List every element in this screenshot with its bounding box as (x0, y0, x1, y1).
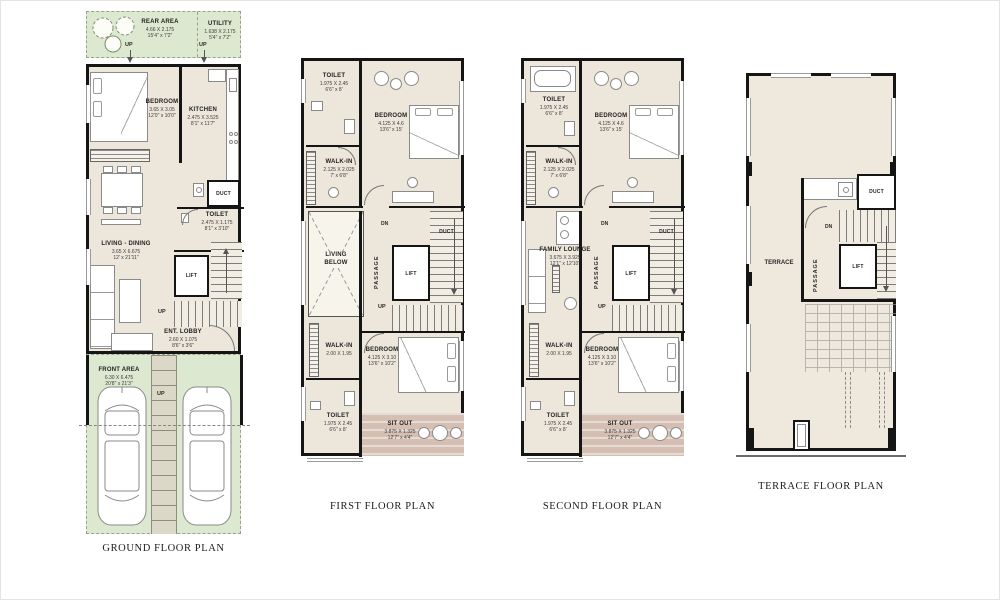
plan-title-second: SECOND FLOOR PLAN (521, 501, 684, 512)
room-dim-ft: 12'1" x 12'10" (534, 261, 596, 268)
fridge (208, 69, 226, 82)
bedroom-door-arc (584, 185, 604, 205)
lift-box: LIFT (612, 245, 650, 301)
terrace-door-arc (805, 206, 827, 228)
toilet-wall (306, 378, 362, 380)
room-label-toilet-bottom: TOILET 1.975 X 2.45 6'6" x 8' (536, 413, 580, 434)
toilet-wall (526, 378, 582, 380)
room-dim-ft: 13'6" x 10'2" (356, 361, 408, 368)
left-col-wall (579, 61, 582, 207)
mid-wall (389, 206, 465, 208)
room-name: TOILET (192, 212, 242, 220)
dresser (612, 191, 654, 203)
room-label-lift: LIFT (394, 271, 428, 278)
room-dim-ft: 8'6" x 3'6" (153, 343, 213, 350)
stair-flight-top (839, 210, 896, 242)
lounge-chair (624, 71, 639, 86)
stair-arrow (886, 226, 887, 288)
sink-drain (843, 187, 849, 193)
left-col-wall (359, 61, 362, 207)
room-dim-m: 2.00 X 1.95 (539, 351, 579, 358)
room-name: LIFT (841, 264, 875, 271)
wall-pier (746, 272, 752, 286)
room-dim-ft: 7' x 6'8" (317, 173, 361, 180)
room-label-front-area: FRONT AREA 6.30 X 6.475 20'8" x 21'3" (93, 367, 145, 388)
room-dim-ft: 6'6" x 8' (536, 427, 580, 434)
sink (311, 101, 323, 111)
room-name: BEDROOM (364, 113, 418, 121)
sink (310, 401, 321, 410)
room-name: FRONT AREA (93, 367, 145, 375)
plot-dash-line (79, 425, 250, 426)
room-label-living-below: LIVING BELOW (319, 252, 353, 268)
stool (627, 177, 638, 188)
window (86, 179, 91, 215)
stair-flight-lower (612, 305, 683, 331)
stool (328, 187, 339, 198)
room-label-ent-lobby: ENT. LOBBY 2.60 X 1.075 8'6" x 3'6" (153, 329, 213, 350)
window (459, 341, 464, 391)
sink (229, 78, 237, 92)
mid-wall-2 (582, 331, 685, 333)
room-label-bedroom-bottom: BEDROOM 4.125 X 3.10 13'6" x 10'2" (576, 347, 628, 368)
room-name: ENT. LOBBY (153, 329, 213, 337)
stove-burner (234, 140, 238, 144)
round-table (652, 425, 668, 441)
window (679, 341, 684, 391)
mid-wall (609, 206, 685, 208)
chair (560, 216, 569, 225)
second-floor-plan: TOILET 1.975 X 2.45 6'6" x 8' BEDROOM 4.… (521, 58, 684, 528)
window (301, 387, 306, 421)
round-table (432, 425, 448, 441)
up-label: UP (199, 42, 207, 48)
room-dim-ft: 6'6" x 8' (310, 87, 358, 94)
toilet-wall (177, 207, 244, 209)
ground-line (736, 455, 906, 457)
pillow (437, 108, 453, 116)
room-label-family-lounge: FAMILY LOUNGE 3.675 X 3.925 12'1" x 12'1… (534, 247, 596, 268)
pillow (93, 101, 102, 117)
room-label-duct: DUCT (209, 191, 238, 198)
pillow (447, 366, 456, 382)
window (746, 98, 751, 156)
room-dim-ft: 5'4" x 7'2" (199, 35, 241, 42)
dining-chair (117, 207, 127, 214)
living-below-void: LIVING BELOW (308, 211, 364, 317)
mid-wall-2 (362, 331, 465, 333)
dining-chair (103, 207, 113, 214)
pillow (667, 343, 676, 359)
dn-label: DN (601, 221, 608, 227)
wc (344, 119, 355, 134)
dn-label: DN (381, 221, 388, 227)
up-label: UP (158, 309, 166, 315)
chair (560, 230, 569, 239)
lift-box: LIFT (174, 255, 209, 297)
room-label-toilet: TOILET 2.475 X 1.175 8'1" x 3'10" (192, 212, 242, 233)
room-label-bedroom-top: BEDROOM 4.125 X 4.6 13'6" x 15' (584, 113, 638, 134)
room-dim-ft: 8'1" x 11'7" (177, 121, 229, 128)
stair-arrowhead (223, 248, 229, 254)
stair-flight-lower (174, 301, 242, 327)
wardrobe (306, 151, 316, 205)
room-dim-ft: 15'4" x 7'2" (127, 33, 193, 40)
room-label-walkin-top: WALK-IN 2.125 X 2.025 7' x 6'8" (537, 159, 581, 180)
stair-flight-lower (392, 305, 463, 331)
room-name: LIVING BELOW (319, 252, 353, 268)
plan-title-terrace: TERRACE FLOOR PLAN (746, 481, 896, 492)
room-name: BEDROOM (134, 99, 190, 107)
room-label-sit-out: SIT OUT 3.875 X 1.325 12'7" x 4'4" (370, 421, 430, 442)
wall-pier (746, 162, 752, 176)
room-label-toilet-top: TOILET 1.975 X 2.45 6'6" x 8' (530, 97, 578, 118)
chair (450, 427, 462, 439)
room-name: WALK-IN (319, 343, 359, 351)
stair-headroom-inner (797, 424, 806, 447)
wardrobe (90, 149, 150, 162)
mid-wall (526, 206, 583, 208)
room-name: LIFT (176, 273, 207, 280)
passage-label: PASSAGE (813, 236, 819, 292)
sit-out-zone: SIT OUT 3.875 X 1.325 12'7" x 4'4" (582, 413, 684, 456)
rear-area-zone: REAR AREA 4.66 X 2.175 15'4" x 7'2" UTIL… (86, 11, 241, 58)
window (301, 221, 306, 305)
dining-chair (103, 166, 113, 173)
room-dim-ft: 13'6" x 15' (364, 127, 418, 134)
room-name: SIT OUT (370, 421, 430, 429)
window (86, 85, 91, 123)
terrace-main-block: DUCT TERRACE PASSAGE LIFT (746, 73, 896, 451)
pillow (667, 366, 676, 382)
wardrobe (309, 323, 319, 377)
up-arrowhead (201, 57, 207, 63)
room-dim-ft: 12' x 21'11" (97, 255, 155, 262)
lift-box: LIFT (839, 244, 877, 289)
bathtub (530, 66, 576, 92)
passage-wall-2 (801, 299, 896, 302)
dining-chair (131, 207, 141, 214)
pillow (657, 108, 673, 116)
passage-label: PASSAGE (374, 233, 380, 289)
lounge-chair (594, 71, 609, 86)
room-dim-ft: 6'6" x 8' (530, 111, 578, 118)
toilet-walkin-wall (526, 145, 581, 147)
room-label-sit-out: SIT OUT 3.875 X 1.325 12'7" x 4'4" (590, 421, 650, 442)
dn-label: DN (825, 224, 832, 230)
pergola-grid (805, 304, 896, 372)
bathtub-inner (534, 70, 571, 87)
window (746, 206, 751, 264)
stair-flight-upper (430, 211, 463, 303)
room-name: BEDROOM (576, 347, 628, 355)
room-name: BEDROOM (356, 347, 408, 355)
window (831, 73, 871, 78)
round-table (610, 78, 622, 90)
room-name: TOILET (530, 97, 578, 105)
stair-flight-upper (650, 211, 683, 303)
front-area-zone: FRONT AREA 6.30 X 6.475 20'8" x 21'3" UP (86, 354, 241, 534)
rug (119, 279, 141, 323)
room-name: FAMILY LOUNGE (534, 247, 596, 255)
wc (344, 391, 355, 406)
room-name: WALK-IN (317, 159, 361, 167)
room-name: LIFT (394, 271, 428, 278)
room-label-lift: LIFT (841, 264, 875, 271)
wardrobe (526, 151, 536, 205)
room-label-duct: DUCT (859, 189, 894, 196)
round-table (390, 78, 402, 90)
ground-floor-plan: REAR AREA 4.66 X 2.175 15'4" x 7'2" UTIL… (86, 9, 241, 569)
pillow (447, 343, 456, 359)
room-label-walkin-top: WALK-IN 2.125 X 2.025 7' x 6'8" (317, 159, 361, 180)
window (891, 98, 896, 156)
room-dim-ft: 6'6" x 8' (316, 427, 360, 434)
room-dim-m: 2.00 X 1.95 (319, 351, 359, 358)
room-name: WALK-IN (537, 159, 581, 167)
lounge-chair (564, 297, 577, 310)
window (771, 73, 811, 78)
room-label-toilet-top: TOILET 1.975 X 2.45 6'6" x 8' (310, 73, 358, 94)
mid-wall (306, 206, 363, 208)
lift-box: LIFT (392, 245, 430, 301)
cabinet (556, 211, 580, 245)
ground-main-block: BEDROOM 3.65 X 3.05 12'0" x 10'0" KITCHE… (86, 64, 241, 354)
washing-machine-door (196, 187, 202, 193)
room-name: TOILET (316, 413, 360, 421)
floor-plan-sheet: REAR AREA 4.66 X 2.175 15'4" x 7'2" UTIL… (0, 0, 1000, 600)
exterior-steps (527, 458, 583, 462)
room-label-bedroom-bottom: BEDROOM 4.125 X 3.10 13'6" x 10'2" (356, 347, 408, 368)
room-name: TOILET (536, 413, 580, 421)
stool (548, 187, 559, 198)
room-name: DUCT (859, 189, 894, 196)
room-dim-ft: 8'1" x 3'10" (192, 226, 242, 233)
dining-table (101, 173, 143, 207)
second-main-block: TOILET 1.975 X 2.45 6'6" x 8' BEDROOM 4.… (521, 58, 684, 456)
room-name: SIT OUT (590, 421, 650, 429)
first-floor-plan: TOILET 1.975 X 2.45 6'6" x 8' BEDROOM 4.… (301, 58, 464, 528)
room-label-living-dining: LIVING - DINING 3.65 X 6.675 12' x 21'11… (97, 241, 155, 262)
bedroom-door-arc (364, 185, 384, 205)
compound-wall (86, 355, 89, 425)
window (679, 81, 684, 155)
pergola-beam (884, 372, 885, 428)
room-label-rear-area: REAR AREA 4.66 X 2.175 15'4" x 7'2" (127, 19, 193, 40)
bookshelf (552, 265, 560, 293)
room-label-duct: DUCT (432, 229, 461, 236)
passage-wall (801, 178, 804, 302)
sit-out-zone: SIT OUT 3.875 X 1.325 12'7" x 4'4" (362, 413, 464, 456)
first-main-block: TOILET 1.975 X 2.45 6'6" x 8' BEDROOM 4.… (301, 58, 464, 456)
duct-box: DUCT (857, 174, 896, 210)
wc (564, 121, 575, 136)
room-label-lift: LIFT (614, 271, 648, 278)
stool (407, 177, 418, 188)
room-name: LIFT (614, 271, 648, 278)
sofa-2 (111, 333, 153, 351)
wall-pier (888, 428, 896, 448)
dresser (392, 191, 434, 203)
room-name: WALK-IN (539, 343, 579, 351)
up-label: UP (157, 391, 165, 397)
lounge-chair (374, 71, 389, 86)
room-label-toilet-bottom: TOILET 1.975 X 2.45 6'6" x 8' (316, 413, 360, 434)
compound-wall (240, 355, 243, 425)
room-dim-ft: 13'6" x 10'2" (576, 361, 628, 368)
sink (838, 182, 853, 197)
wc (564, 391, 575, 406)
exterior-steps (307, 458, 363, 462)
room-name: TOILET (310, 73, 358, 81)
plan-title-ground: GROUND FLOOR PLAN (86, 543, 241, 554)
window (746, 324, 751, 372)
room-dim-ft: 20'8" x 21'3" (93, 381, 145, 388)
stair-arrowhead (671, 289, 677, 295)
room-label-lift: LIFT (176, 273, 207, 280)
stair-arrowhead (883, 286, 889, 292)
stair-arrow (226, 253, 227, 293)
walkway-steps (151, 355, 177, 534)
window (891, 316, 896, 372)
car-icon (180, 383, 234, 529)
console (101, 219, 141, 225)
pergola-beam (845, 372, 846, 428)
room-label-walkin-bottom: WALK-IN 2.00 X 1.95 (319, 343, 359, 357)
washing-machine (193, 183, 204, 197)
dining-chair (131, 166, 141, 173)
room-label-bedroom-top: BEDROOM 4.125 X 4.6 13'6" x 15' (364, 113, 418, 134)
chair (670, 427, 682, 439)
window (86, 249, 91, 285)
window (521, 79, 526, 103)
terrace-floor-plan: DUCT TERRACE PASSAGE LIFT (746, 73, 896, 513)
room-dim-ft: 7' x 6'8" (537, 173, 581, 180)
room-name: DUCT (432, 229, 461, 236)
room-name: KITCHEN (177, 107, 229, 115)
wardrobe (529, 323, 539, 377)
room-name: DUCT (652, 229, 681, 236)
up-arrowhead (127, 57, 133, 63)
room-label-walkin-bottom: WALK-IN 2.00 X 1.95 (539, 343, 579, 357)
counter (803, 178, 857, 200)
lounge-chair (404, 71, 419, 86)
room-name: UTILITY (199, 21, 241, 29)
window (521, 221, 526, 305)
wall-pier (746, 428, 754, 448)
room-dim-ft: 12'7" x 4'4" (590, 435, 650, 442)
room-dim-ft: 12'7" x 4'4" (370, 435, 430, 442)
up-label: UP (125, 42, 133, 48)
stove-burner (229, 132, 233, 136)
window (459, 81, 464, 155)
pillow (93, 78, 102, 94)
room-label-duct: DUCT (652, 229, 681, 236)
up-label: UP (598, 304, 606, 310)
room-label-kitchen: KITCHEN 2.475 X 3.525 8'1" x 11'7" (177, 107, 229, 128)
room-name: REAR AREA (127, 19, 193, 27)
duct-box: DUCT (207, 180, 240, 207)
room-label-utility: UTILITY 1.638 X 2.175 5'4" x 7'2" (199, 21, 241, 42)
utility-divider (197, 12, 198, 57)
terrace-label: TERRACE (757, 260, 801, 266)
room-name: LIVING - DINING (97, 241, 155, 249)
stove-burner (234, 132, 238, 136)
toilet-walkin-wall (306, 145, 361, 147)
window (301, 79, 306, 103)
car-icon (95, 383, 149, 529)
pergola-beam (879, 372, 880, 428)
window (521, 387, 526, 421)
stair-headroom (793, 420, 810, 451)
stair-arrowhead (451, 289, 457, 295)
room-dim-ft: 13'6" x 15' (584, 127, 638, 134)
stove-burner (229, 140, 233, 144)
up-label: UP (378, 304, 386, 310)
dining-chair (117, 166, 127, 173)
sink (530, 401, 541, 410)
room-name: BEDROOM (584, 113, 638, 121)
room-name: DUCT (209, 191, 238, 198)
pergola-beam (850, 372, 851, 428)
plan-title-first: FIRST FLOOR PLAN (301, 501, 464, 512)
